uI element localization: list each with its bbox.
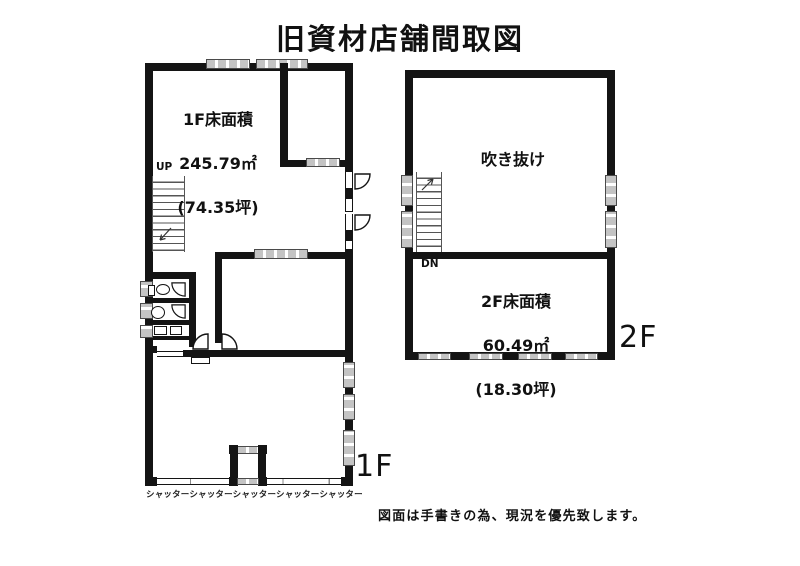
- toilet-tank-icon: [148, 285, 155, 296]
- floor2-tag: 2F: [619, 320, 657, 355]
- window: [237, 446, 259, 454]
- door-arc: [192, 333, 209, 350]
- wall: [345, 188, 353, 198]
- floor1-area-tsubo: (74.35坪): [155, 197, 281, 219]
- utility-fixture-icon: [154, 326, 167, 335]
- door-arc: [354, 173, 371, 190]
- shutter-label: シャッターシャッターシャッターシャッターシャッター: [146, 488, 363, 500]
- window: [254, 249, 308, 259]
- wall: [280, 63, 288, 167]
- door-opening: [157, 351, 183, 357]
- door-opening: [345, 172, 353, 188]
- dn-label: DN: [421, 258, 439, 270]
- wall: [153, 298, 189, 303]
- page-title: 旧資材店舗間取図: [0, 16, 800, 58]
- window: [401, 211, 413, 248]
- wall: [153, 336, 189, 340]
- door-arc: [171, 282, 186, 297]
- door-threshold: [191, 357, 210, 364]
- window: [605, 175, 617, 206]
- footer-note: 図面は手書きの為、現況を優先致します。: [378, 505, 647, 524]
- window: [343, 430, 355, 466]
- window: [418, 353, 451, 360]
- door-arc: [354, 214, 371, 231]
- wall: [341, 477, 353, 486]
- wall: [345, 230, 353, 240]
- wall: [405, 70, 615, 78]
- wall: [215, 252, 222, 343]
- floor1-area-label: 1F床面積: [155, 109, 281, 131]
- wall: [345, 63, 353, 172]
- floor2-area-tsubo: (18.30坪): [453, 379, 579, 401]
- floor2-area-text: 2F床面積 60.49㎡ (18.30坪): [453, 269, 579, 423]
- window: [343, 362, 355, 388]
- wall: [145, 346, 157, 353]
- void-label: 吹き抜け: [453, 146, 573, 170]
- wall: [145, 477, 157, 486]
- floor1-area-sqm: 245.79㎡: [155, 153, 281, 175]
- wall: [229, 445, 238, 454]
- window: [343, 394, 355, 420]
- floor1-area-text: 1F床面積 245.79㎡ (74.35坪): [155, 87, 281, 241]
- sink-icon: [151, 306, 165, 319]
- door-opening: [345, 214, 353, 230]
- window-opening: [345, 240, 353, 250]
- window: [206, 59, 250, 69]
- window: [237, 478, 259, 485]
- door-arc: [221, 333, 238, 350]
- window-opening: [345, 198, 353, 212]
- door-arc: [171, 304, 186, 319]
- wall: [258, 477, 267, 486]
- window: [401, 175, 413, 206]
- floor2-area-sqm: 60.49㎡: [453, 335, 579, 357]
- floor2-area-label: 2F床面積: [453, 291, 579, 313]
- window: [306, 158, 340, 167]
- window: [140, 325, 153, 338]
- floor1-tag: 1F: [355, 449, 393, 484]
- window: [605, 211, 617, 248]
- floorplan-canvas: 旧資材店舗間取図 UP: [0, 0, 800, 566]
- stairs-arrow-icon: [419, 176, 437, 194]
- utility-fixture-icon: [170, 326, 182, 335]
- wall: [258, 445, 267, 454]
- wall: [153, 320, 189, 325]
- wall: [183, 350, 353, 357]
- toilet-icon: [156, 284, 170, 295]
